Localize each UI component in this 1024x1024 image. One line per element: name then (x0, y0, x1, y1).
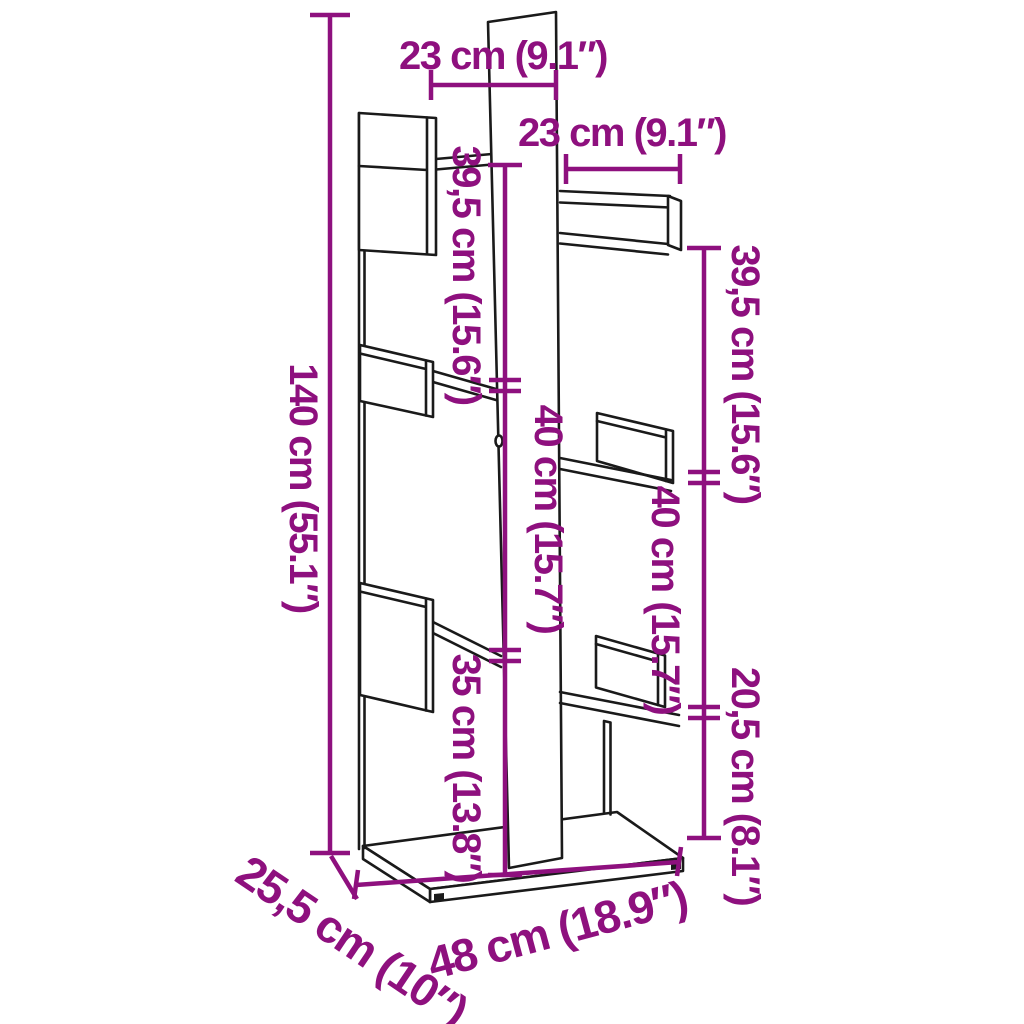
diagram-canvas: 23 cm (9.1″) 23 cm (9.1″) 140 cm (55.1″)… (0, 0, 1024, 1024)
label-lower-left-height: 35 cm (13.8″) (444, 654, 488, 883)
right-top-end-board (668, 196, 681, 250)
label-lower-right-height: 20,5 cm (8.1″) (723, 667, 767, 905)
label-width-top-right: 23 cm (9.1″) (518, 111, 726, 155)
label-upper-right-height: 39,5 cm (15.6″) (723, 244, 767, 503)
label-upper-left-height: 39,5 cm (15.6″) (444, 145, 488, 404)
left-end-board-lower (360, 583, 433, 712)
label-width-top-left: 23 cm (9.1″) (399, 34, 607, 78)
bookshelf-dimension-diagram: 23 cm (9.1″) 23 cm (9.1″) 140 cm (55.1″)… (0, 0, 1024, 1024)
label-middle-right-height: 40 cm (15.7″) (643, 486, 687, 715)
left-end-board-top (359, 113, 436, 255)
base-foot-left (434, 893, 444, 901)
cam-lock-hole (496, 436, 503, 447)
label-middle-left-height: 40 cm (15.7″) (526, 405, 570, 634)
label-total-height: 140 cm (55.1″) (281, 363, 325, 613)
